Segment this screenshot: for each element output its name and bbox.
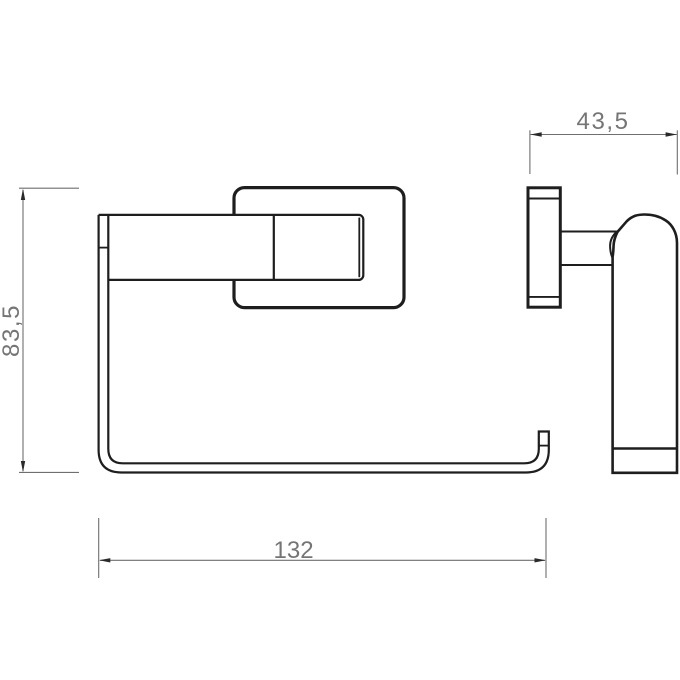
svg-text:43,5: 43,5 xyxy=(577,108,630,135)
svg-text:132: 132 xyxy=(274,537,314,564)
svg-text:83,5: 83,5 xyxy=(0,304,25,357)
